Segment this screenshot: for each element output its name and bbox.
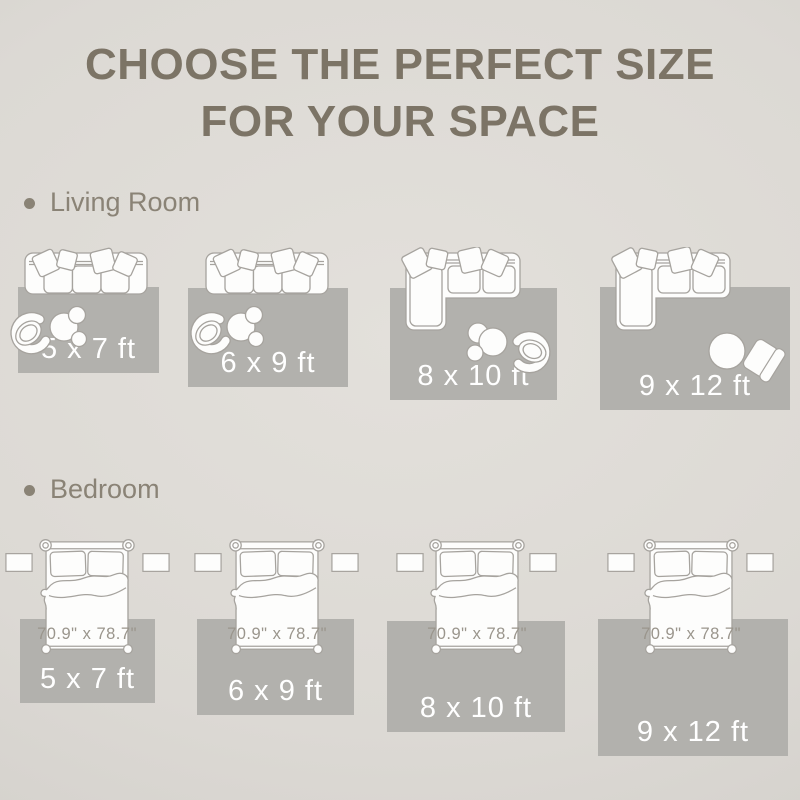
- nightstand-icon: [142, 552, 170, 573]
- rug-size-label: 5 x 7 ft: [40, 665, 135, 703]
- section-header-living-room: Living Room: [24, 187, 200, 218]
- nightstand-icon: [331, 552, 359, 573]
- coffee-table-icon: [466, 322, 510, 364]
- bed-size-label: 70.9" x 78.7": [37, 625, 137, 644]
- sofa-icon: [205, 247, 329, 295]
- nightstand-icon: [5, 552, 33, 573]
- page-title-line1: CHOOSE THE PERFECT SIZE: [0, 36, 800, 93]
- sectional-sofa-icon: [397, 247, 521, 331]
- bed-size-label: 70.9" x 78.7": [427, 625, 527, 644]
- sofa-icon: [24, 247, 148, 295]
- accent-chair-icon: [506, 326, 560, 383]
- bed-icon: 70.9" x 78.7": [227, 539, 327, 656]
- rug-size-guide-infographic: CHOOSE THE PERFECT SIZE FOR YOUR SPACE L…: [0, 0, 800, 800]
- bullet-icon: [24, 485, 35, 496]
- nightstand-icon: [746, 552, 774, 573]
- page-title-line2: FOR YOUR SPACE: [0, 93, 800, 150]
- page-title: CHOOSE THE PERFECT SIZE FOR YOUR SPACE: [0, 36, 800, 150]
- rug-size-label: 8 x 10 ft: [420, 694, 532, 732]
- coffee-table-icon: [48, 306, 90, 350]
- section-label: Living Room: [50, 187, 200, 218]
- bed-icon: 70.9" x 78.7": [427, 539, 527, 656]
- nightstand-icon: [194, 552, 222, 573]
- coffee-table-icon: [225, 306, 267, 350]
- bed-size-label: 70.9" x 78.7": [227, 625, 327, 644]
- bullet-icon: [24, 198, 35, 209]
- bed-icon: 70.9" x 78.7": [37, 539, 137, 656]
- section-label: Bedroom: [50, 474, 160, 505]
- rug-size-label: 9 x 12 ft: [639, 372, 751, 410]
- rug-size-label: 9 x 12 ft: [637, 718, 749, 756]
- bed-size-label: 70.9" x 78.7": [641, 625, 741, 644]
- nightstand-icon: [396, 552, 424, 573]
- bed-icon: 70.9" x 78.7": [641, 539, 741, 656]
- nightstand-icon: [529, 552, 557, 573]
- section-header-bedroom: Bedroom: [24, 474, 160, 505]
- nightstand-icon: [607, 552, 635, 573]
- rug-size-label: 6 x 9 ft: [228, 677, 323, 715]
- sectional-sofa-icon: [607, 247, 731, 331]
